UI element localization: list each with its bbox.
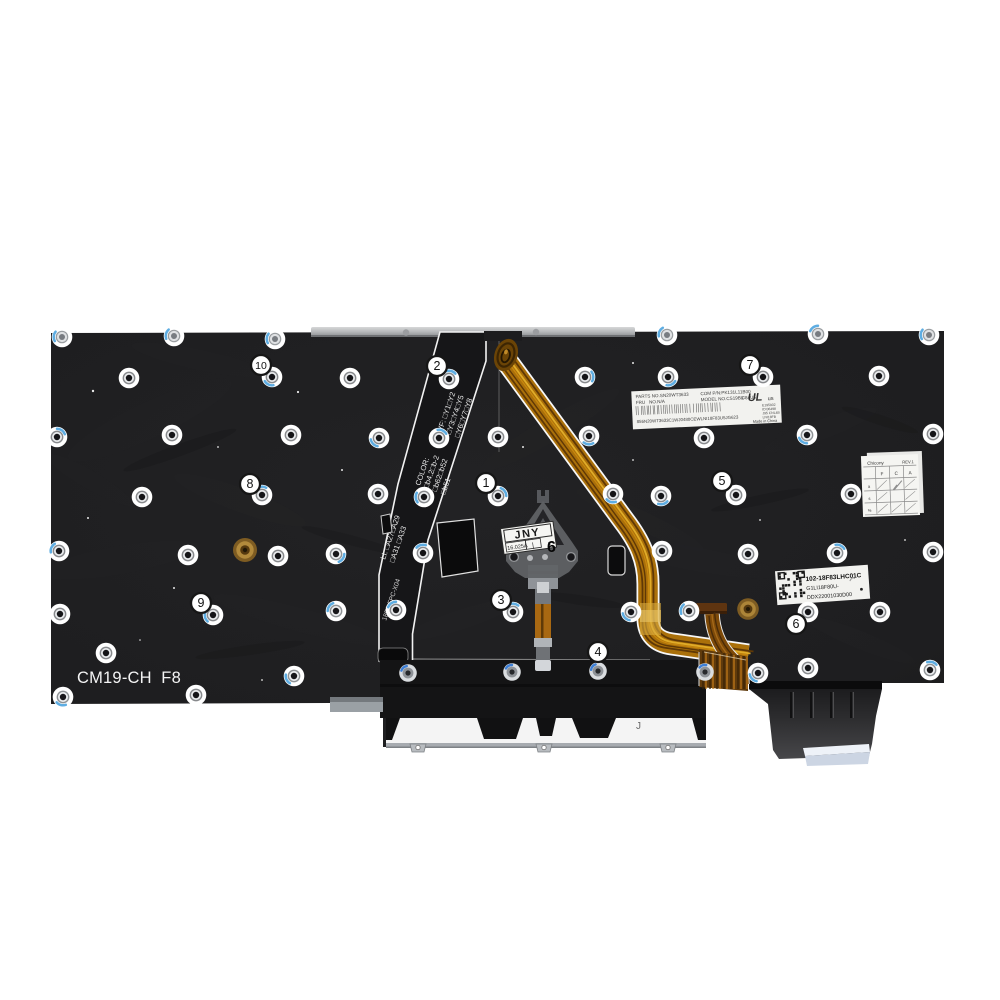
svg-text:us: us	[768, 396, 774, 402]
svg-text:CM19-CH F8: CM19-CH F8	[77, 669, 181, 687]
svg-text:3: 3	[498, 593, 505, 607]
svg-text:c: c	[742, 395, 745, 401]
svg-text:10: 10	[255, 360, 267, 372]
svg-text:2: 2	[434, 359, 441, 373]
svg-text:J: J	[636, 721, 641, 732]
svg-text:6: 6	[547, 539, 556, 556]
svg-text:4: 4	[595, 645, 602, 659]
svg-text:REV.1: REV.1	[902, 459, 915, 464]
svg-text:s: s	[868, 496, 870, 501]
svg-text:1: 1	[483, 476, 490, 490]
svg-text:6: 6	[793, 617, 800, 631]
svg-text:Chicony: Chicony	[867, 460, 884, 466]
svg-text:7: 7	[747, 358, 754, 372]
svg-text:9: 9	[198, 596, 205, 610]
svg-text:%: %	[868, 508, 872, 513]
svg-text:5: 5	[719, 474, 726, 488]
svg-text:8: 8	[247, 477, 254, 491]
svg-text:UL: UL	[747, 391, 762, 404]
svg-text:F: F	[880, 471, 883, 476]
